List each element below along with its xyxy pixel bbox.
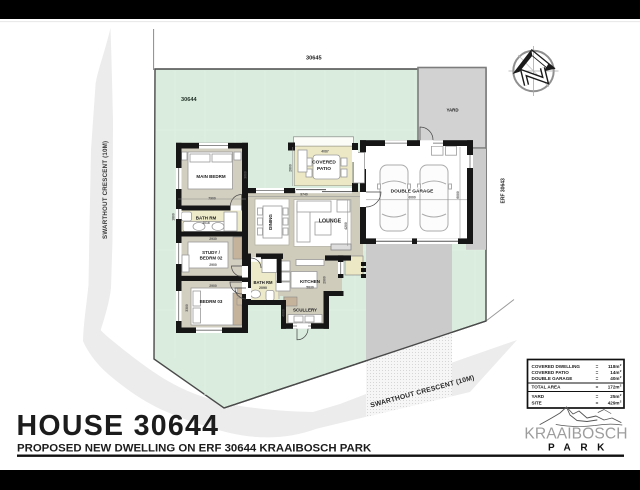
svg-text:118m: 118m: [608, 364, 620, 369]
svg-text:PARK: PARK: [548, 443, 614, 454]
svg-text:30645: 30645: [306, 56, 322, 62]
svg-text:=: =: [596, 385, 599, 390]
svg-text:3300: 3300: [185, 304, 189, 312]
svg-text:14m: 14m: [610, 370, 619, 375]
svg-text:9740: 9740: [300, 192, 308, 196]
svg-text:LOUNGE: LOUNGE: [319, 219, 342, 225]
svg-text:2900: 2900: [209, 263, 217, 267]
svg-text:2800: 2800: [289, 164, 293, 172]
svg-text:BEDRM 03: BEDRM 03: [200, 299, 223, 304]
svg-text:4000: 4000: [282, 309, 286, 317]
svg-text:COVERED PATIO: COVERED PATIO: [532, 370, 570, 375]
svg-text:HOUSE 30644: HOUSE 30644: [17, 410, 220, 442]
svg-text:5830: 5830: [306, 286, 314, 290]
svg-text:ERF 30643: ERF 30643: [501, 178, 507, 204]
svg-text:30644: 30644: [181, 97, 197, 103]
svg-text:4087: 4087: [321, 149, 329, 153]
svg-text:4200: 4200: [344, 222, 348, 230]
svg-text:YARD: YARD: [532, 394, 545, 399]
svg-text:40m: 40m: [610, 376, 619, 381]
svg-text:6000: 6000: [456, 191, 460, 199]
svg-text:7900: 7900: [208, 196, 216, 200]
svg-text:3600: 3600: [244, 171, 248, 179]
svg-text:2900: 2900: [209, 284, 217, 288]
svg-text:=: =: [596, 394, 599, 399]
svg-text:=: =: [596, 370, 599, 375]
svg-text:25m: 25m: [610, 394, 619, 399]
svg-text:4016: 4016: [202, 221, 210, 225]
svg-text:BATH RM: BATH RM: [196, 216, 217, 221]
svg-text:SCULLERY: SCULLERY: [293, 308, 317, 313]
svg-text:MAIN BEDRM: MAIN BEDRM: [196, 174, 225, 179]
svg-text:KITCHEN: KITCHEN: [300, 279, 320, 284]
svg-text:YARD: YARD: [446, 108, 458, 113]
svg-text:BATH RM: BATH RM: [254, 280, 274, 285]
svg-text:1800: 1800: [172, 213, 176, 221]
svg-text:2090: 2090: [259, 286, 267, 290]
svg-text:2930: 2930: [209, 237, 217, 241]
svg-text:PROPOSED NEW DWELLING ON ERF 3: PROPOSED NEW DWELLING ON ERF 30644 KRAAI…: [17, 443, 372, 455]
svg-text:COVERED DWELLING: COVERED DWELLING: [532, 364, 581, 369]
svg-text:429m: 429m: [608, 401, 620, 406]
svg-text:=: =: [596, 364, 599, 369]
svg-text:DOUBLE GARAGE: DOUBLE GARAGE: [391, 189, 434, 195]
svg-text:KRAAIBOSCH: KRAAIBOSCH: [524, 426, 627, 443]
svg-text:STUDY /: STUDY /: [202, 250, 220, 255]
svg-text:=: =: [596, 376, 599, 381]
svg-text:DINING: DINING: [268, 214, 273, 230]
svg-text:COVERED: COVERED: [312, 160, 336, 166]
svg-text:172m: 172m: [608, 385, 620, 390]
svg-text:DOUBLE GARAGE: DOUBLE GARAGE: [532, 376, 573, 381]
svg-text:TOTAL AREA: TOTAL AREA: [532, 385, 562, 390]
svg-text:2900: 2900: [323, 276, 327, 284]
svg-text:BEDRM 02: BEDRM 02: [200, 256, 223, 261]
svg-text:SITE: SITE: [532, 401, 542, 406]
svg-text:PATIO: PATIO: [317, 166, 331, 172]
svg-text:SWARTHOUT CRESCENT (10M): SWARTHOUT CRESCENT (10M): [102, 141, 109, 239]
svg-text:6000: 6000: [408, 196, 416, 200]
svg-text:=: =: [596, 401, 599, 406]
